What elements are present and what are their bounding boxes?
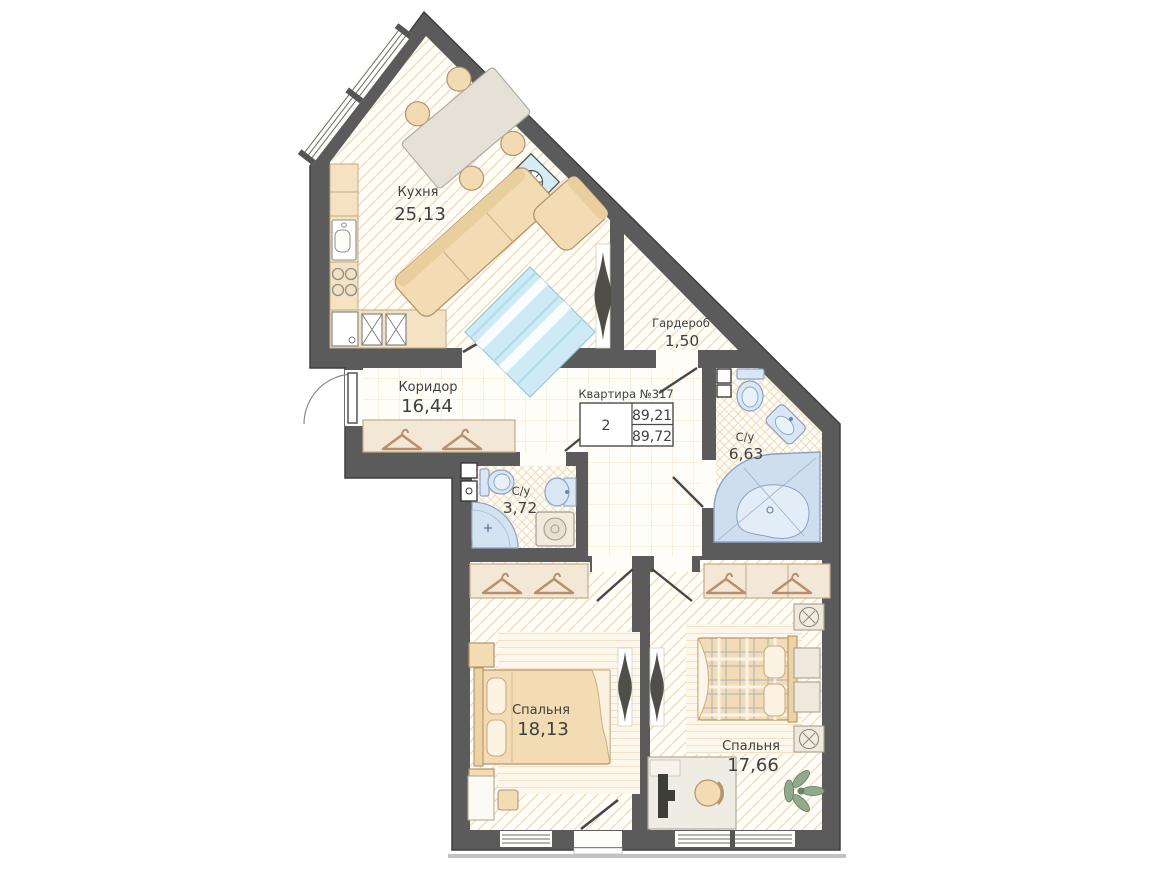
kitchen-tv xyxy=(595,244,612,348)
floor-plan-page: Кухня 25,13 Гардероб 1,50 Коридор 16,44 … xyxy=(0,0,1152,874)
pillow xyxy=(764,646,785,678)
bedroom-1-tv xyxy=(618,648,632,726)
wardrobe-name: Гардероб xyxy=(652,316,710,330)
bedroom-2-window xyxy=(675,831,795,847)
desk xyxy=(648,757,736,829)
bathroom-small-sink-icon xyxy=(545,478,576,506)
stool xyxy=(498,790,518,810)
bedroom-2-name: Спальня xyxy=(722,739,780,754)
bathroom-large-area: 6,63 xyxy=(729,445,764,463)
papers xyxy=(650,760,680,776)
office-chair xyxy=(695,780,721,806)
monitor-icon xyxy=(658,774,668,818)
room-label-bedroom-1: Спальня 18,13 xyxy=(512,703,570,740)
toilet-icon-2 xyxy=(737,369,764,411)
room-label-kitchen: Кухня 25,13 xyxy=(394,185,446,225)
nightstand xyxy=(469,643,494,667)
apartment-info-table: Квартира №317 2 89,21 89,72 xyxy=(578,387,673,446)
utility-meters xyxy=(461,463,477,501)
room-label-corridor: Коридор 16,44 xyxy=(398,380,457,417)
balcony-parapet xyxy=(448,854,846,858)
corridor-area: 16,44 xyxy=(401,396,453,417)
bedroom-1-area: 18,13 xyxy=(517,719,569,740)
apartment-area-bottom: 89,72 xyxy=(632,429,672,445)
nightstand-lamp-bottom xyxy=(794,726,824,752)
pillow xyxy=(487,678,506,714)
entrance-door-leaf xyxy=(348,373,357,423)
kitchen-name: Кухня xyxy=(398,185,439,200)
toilet-icon xyxy=(480,469,514,496)
apartment-rooms-count: 2 xyxy=(602,418,611,434)
kitchen-area: 25,13 xyxy=(394,204,446,225)
bedroom-2-area: 17,66 xyxy=(727,755,779,776)
bathroom-small-name: С/у xyxy=(512,484,531,498)
bedroom-2-tv xyxy=(650,648,664,726)
room-label-bedroom-2: Спальня 17,66 xyxy=(722,739,780,776)
corridor-furniture xyxy=(363,420,515,452)
floor-plan-image: Кухня 25,13 Гардероб 1,50 Коридор 16,44 … xyxy=(0,0,1152,874)
pillow xyxy=(764,684,785,716)
kitchen-sink-icon xyxy=(332,220,356,260)
nightstand-lamp-top xyxy=(794,604,824,630)
kitchen-base-cabinets xyxy=(332,312,406,346)
pillow xyxy=(487,720,506,756)
bedroom-1-window xyxy=(500,831,552,847)
bedroom-1-name: Спальня xyxy=(512,703,570,718)
bed-1-headboard xyxy=(474,668,483,766)
bathroom-large-name: С/у xyxy=(736,430,755,444)
entrance-door xyxy=(304,370,363,426)
bed-2 xyxy=(698,636,797,722)
bathroom-small-area: 3,72 xyxy=(503,499,538,517)
apartment-title: Квартира №317 xyxy=(578,387,673,401)
corridor-name: Коридор xyxy=(398,380,457,395)
apartment-area-top: 89,21 xyxy=(632,408,672,424)
washing-machine-icon xyxy=(536,512,574,546)
wardrobe-area: 1,50 xyxy=(665,332,700,350)
utility-meters-2 xyxy=(717,369,731,397)
